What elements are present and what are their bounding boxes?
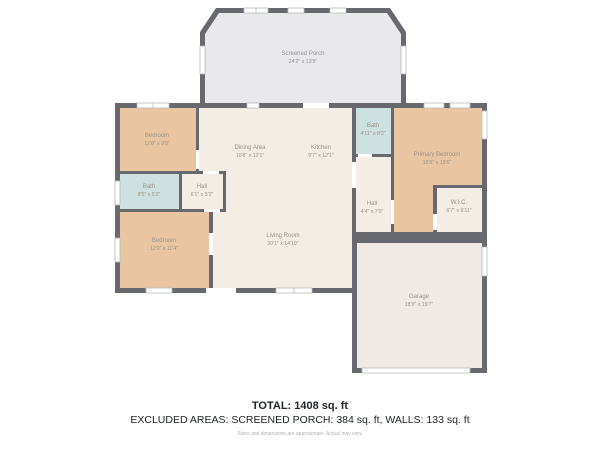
room-dims: 6'1" x 5'2" <box>191 192 214 198</box>
window <box>424 103 444 108</box>
room-label: Bedroom <box>152 238 176 244</box>
total-area-text: TOTAL: 1408 sq. ft <box>0 399 600 413</box>
door-opening <box>352 162 356 188</box>
door-opening <box>358 154 372 157</box>
wall <box>223 174 226 212</box>
room-label: Garage <box>409 294 430 300</box>
porch-door-opening <box>303 103 329 108</box>
summary-footer: TOTAL: 1408 sq. ft EXCLUDED AREAS: SCREE… <box>0 399 600 438</box>
room-dims: 18'9" x 19'7" <box>405 302 434 308</box>
room-label: Hall <box>367 201 377 207</box>
room-label: Bath <box>367 123 379 129</box>
window <box>247 103 259 108</box>
room-dims: 4'4" x 7'0" <box>361 209 384 215</box>
wall <box>179 174 182 209</box>
wall <box>433 185 482 188</box>
room-label: Living Room <box>266 233 299 239</box>
room-dims: 9'7" x 12'1" <box>308 153 334 159</box>
room-label: Dining Area <box>234 145 266 151</box>
room-dims: 24'2" x 13'5" <box>289 59 318 65</box>
floor-plan-drawing: Screened Porch 24'2" x 13'5" Bedroom 12'… <box>0 0 600 398</box>
door-opening <box>433 214 437 230</box>
room-label: Hall <box>197 184 207 190</box>
door-opening <box>209 233 213 255</box>
room-dims: 15'6" x 19'6" <box>423 160 452 166</box>
room-label: Bath <box>143 184 155 190</box>
window <box>115 181 120 205</box>
room-label: W.I.C. <box>451 200 468 206</box>
door-opening <box>196 150 199 169</box>
porch-window <box>200 46 205 74</box>
room-dims: 20'1" x 14'10" <box>267 241 298 247</box>
window <box>482 247 487 276</box>
bedroom-top-left-floor <box>120 108 196 171</box>
window <box>482 111 487 139</box>
disclaimer-text: Sizes and dimensions are approximate. Ac… <box>0 430 600 438</box>
window <box>146 288 172 293</box>
excluded-areas-text: EXCLUDED AREAS: SCREENED PORCH: 384 sq. … <box>0 413 600 427</box>
floor-plan-page: Screened Porch 24'2" x 13'5" Bedroom 12'… <box>0 0 600 450</box>
room-dims: 4'11" x 8'2" <box>360 131 385 137</box>
room-screened-porch <box>200 8 406 106</box>
garage-door-opening <box>362 368 470 373</box>
porch-window <box>330 8 346 13</box>
room-label: Kitchen <box>311 145 331 151</box>
room-label: Bedroom <box>145 133 169 139</box>
room-dims: 8'5" x 5'2" <box>138 192 161 198</box>
room-dims: 10'8" x 12'1" <box>236 153 265 159</box>
room-label: Primary Bedroom <box>414 152 461 158</box>
room-dims: 12'0" x 11'4" <box>150 246 178 252</box>
room-dims: 12'8" x 9'9" <box>144 141 170 147</box>
entry-door-opening <box>206 288 236 293</box>
window <box>115 238 120 262</box>
door-opening <box>203 171 219 174</box>
window <box>450 103 470 108</box>
porch-window <box>288 8 304 13</box>
porch-window <box>401 46 406 74</box>
door-opening <box>204 209 220 212</box>
room-dims: 6'7" x 6'11" <box>446 208 471 214</box>
door-opening <box>391 200 394 224</box>
room-label: Screened Porch <box>281 51 324 57</box>
